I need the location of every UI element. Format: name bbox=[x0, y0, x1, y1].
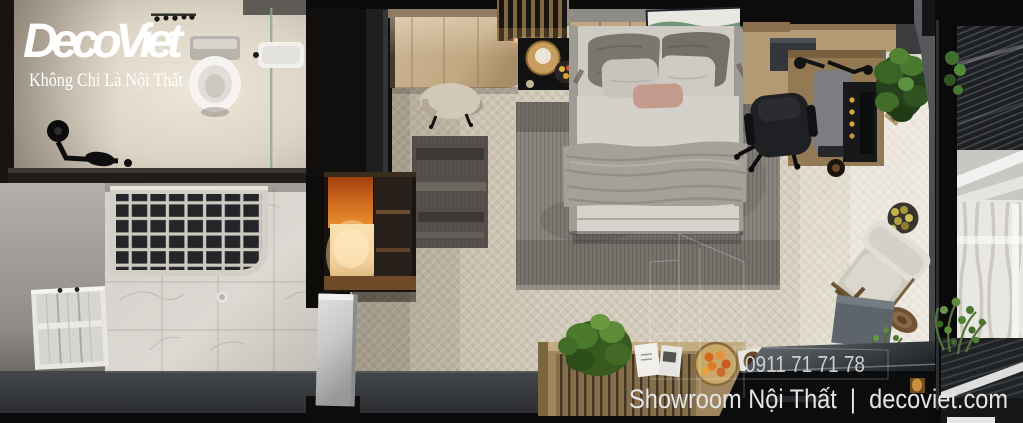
svg-text:Showroom Nội Thất | decoviet: Showroom Nội Thất | decoviet.com bbox=[629, 384, 1008, 414]
svg-text:DecoViet: DecoViet bbox=[23, 15, 185, 68]
svg-text:Không Chỉ Là Nội Thất: Không Chỉ Là Nội Thất bbox=[29, 70, 184, 91]
svg-text:0911 71 71 78: 0911 71 71 78 bbox=[745, 351, 865, 377]
